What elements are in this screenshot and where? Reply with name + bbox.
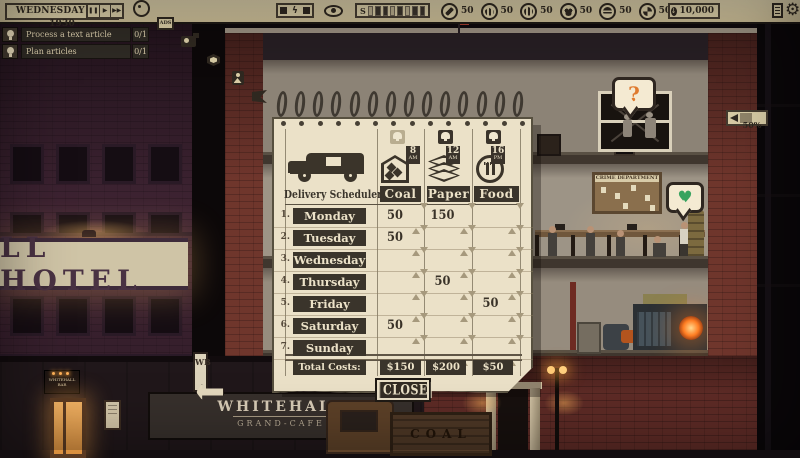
quest-label: Process a text article	[21, 27, 131, 42]
faction-value: 50	[540, 6, 553, 16]
ring-holes	[279, 121, 525, 126]
hotel-window	[56, 144, 90, 184]
coal-alarm-bell[interactable]	[390, 130, 405, 144]
question-mark-icon: ?	[628, 82, 640, 106]
row-number: 7.	[274, 342, 290, 352]
money-display: ↓ 10,000	[668, 3, 720, 19]
paper-column-header: Paper	[427, 186, 470, 202]
delivery-scheduler-dialog: Delivery Scheduler 8AM 12AM 16PM Coal Pa…	[272, 91, 533, 411]
coal-cell-sunday	[377, 338, 424, 359]
row-number: 1.	[274, 210, 290, 220]
value-stepper[interactable]	[412, 253, 422, 268]
coal-cell-tuesday: 50	[377, 228, 424, 249]
coal-icon	[381, 155, 409, 183]
control-panel	[577, 322, 601, 354]
coal-cell-thursday	[377, 272, 424, 293]
circulation-display: 50%	[726, 110, 768, 126]
food-time-badge: 16PM	[491, 146, 505, 164]
quest-label: Plan articles	[21, 44, 131, 59]
hotel-window	[10, 144, 44, 184]
paper-total: $200	[426, 360, 466, 375]
quest-progress: 0/1	[132, 44, 149, 59]
coal-column-header: Coal	[380, 186, 421, 202]
value-stepper[interactable]	[412, 209, 422, 224]
food-cell-wednesday	[472, 250, 520, 271]
staff-menu-button[interactable]	[229, 71, 246, 88]
day-label: Thursday	[293, 274, 366, 290]
value-stepper[interactable]	[460, 209, 470, 224]
sales-meter: S	[355, 3, 430, 18]
crowd-circle-icon[interactable]	[560, 3, 577, 20]
hotel-window	[148, 144, 182, 184]
heart-bubble[interactable]: ♥	[666, 182, 704, 213]
faction-stat: 50	[599, 3, 632, 20]
schedule-row: 1. Monday 50 150	[274, 206, 535, 228]
builder-worker	[645, 118, 656, 138]
value-stepper[interactable]	[412, 319, 422, 334]
paper-stack-icon	[207, 54, 220, 66]
faction-reputation-group: 50 50 50 50 50 50	[441, 2, 678, 20]
schedule-row: 2. Tuesday 50	[274, 228, 535, 250]
lamppost	[547, 362, 567, 450]
value-stepper[interactable]	[460, 297, 470, 312]
row-number: 4.	[274, 276, 290, 286]
brick-column-right	[708, 33, 757, 356]
coal-cell-wednesday	[377, 250, 424, 271]
circulation-value: 50%	[743, 120, 762, 130]
value-stepper[interactable]	[508, 231, 518, 246]
food-cell-monday	[472, 206, 520, 227]
meter-segment	[375, 6, 380, 16]
schedule-row: 6. Saturday 50	[274, 316, 535, 338]
food-cell-thursday	[472, 272, 520, 293]
top-resource-bar: WEDNESDAY JAN 1930 ❚❚ ▶ ▶▶ ADS ϟ S 50 50…	[0, 0, 800, 22]
pause-button[interactable]: ❚❚	[88, 5, 100, 17]
coal-cell-friday	[377, 294, 424, 315]
faction-stat: 50	[441, 3, 474, 20]
ads-menu-button[interactable]: ADS	[157, 17, 174, 34]
report-icon[interactable]	[772, 3, 783, 18]
cell-value: 50	[428, 274, 457, 289]
value-stepper[interactable]	[460, 253, 470, 268]
crime-department-board: CRIME DEPARTMENT	[592, 172, 662, 214]
day-label: Wednesday	[293, 252, 366, 268]
boiler-furnace	[633, 304, 707, 350]
truck-cargo: COAL	[390, 412, 492, 456]
globe-icon	[133, 0, 150, 17]
meter-segment	[412, 6, 417, 16]
leaf-circle-icon[interactable]	[441, 3, 458, 20]
value-stepper[interactable]	[508, 297, 518, 312]
value-stepper[interactable]	[508, 275, 518, 290]
power-segment	[280, 7, 287, 14]
paper-cell-tuesday	[424, 228, 472, 249]
value-stepper[interactable]	[460, 341, 470, 356]
cell-value: 50	[381, 208, 409, 223]
lightbulb-icon	[2, 44, 18, 59]
row-number: 2.	[274, 232, 290, 242]
value-stepper[interactable]	[412, 231, 422, 246]
delivery-menu-button[interactable]	[252, 90, 269, 107]
food-alarm-bell[interactable]	[486, 130, 501, 144]
schedule-row: 7. Sunday	[274, 338, 535, 360]
paper-alarm-bell[interactable]	[438, 130, 453, 144]
coin-icon: ↓	[671, 7, 677, 16]
meter-segment	[383, 6, 388, 16]
totals-row: Total Costs: $150 $200 $50	[274, 360, 535, 376]
neighbor-building	[757, 24, 800, 450]
fast-forward-button[interactable]: ▶▶	[111, 5, 122, 17]
row-number: 5.	[274, 298, 290, 308]
question-bubble[interactable]: ?	[612, 77, 656, 111]
meter-segment	[397, 6, 402, 16]
paper-cell-sunday	[424, 338, 472, 359]
scheduler-title: Delivery Scheduler	[284, 188, 376, 201]
cell-value: 150	[428, 208, 457, 223]
value-stepper[interactable]	[412, 341, 422, 356]
quest-progress: 0/1	[132, 27, 149, 42]
crime-board-title: CRIME DEPARTMENT	[595, 175, 659, 182]
day-label: Saturday	[293, 318, 366, 334]
faction-stat: 50	[560, 3, 593, 20]
lightning-icon: ϟ	[292, 6, 298, 16]
industry-circle-icon[interactable]	[481, 3, 498, 20]
day-label: Tuesday	[293, 230, 366, 246]
cell-value: 50	[476, 296, 505, 311]
faction-value: 50	[461, 6, 474, 16]
paper-cell-saturday	[424, 316, 472, 337]
bank-circle-icon[interactable]	[520, 3, 537, 20]
pennant-icon	[252, 90, 267, 103]
decrement-arrow-icon[interactable]	[516, 335, 524, 360]
paper-cell-wednesday	[424, 250, 472, 271]
quest-row[interactable]: Process a text article 0/1	[2, 27, 149, 42]
meter-segment	[368, 6, 373, 16]
power-segment	[303, 7, 310, 14]
hotel-sign: LL HOTEL	[0, 238, 188, 290]
settings-gear-icon[interactable]: ⚙	[785, 0, 800, 20]
quest-tracker: Process a text article 0/1 Plan articles…	[2, 27, 149, 61]
faction-stat: 50	[520, 3, 553, 20]
meter-segment	[390, 6, 395, 16]
day-label: Sunday	[293, 340, 366, 356]
heart-icon: ♥	[677, 188, 692, 208]
totals-label: Total Costs:	[293, 360, 366, 375]
faction-stat: 50	[639, 3, 672, 20]
food-cell-saturday	[472, 316, 520, 337]
coal-total: $150	[380, 360, 421, 375]
value-stepper[interactable]	[508, 341, 518, 356]
value-stepper[interactable]	[460, 275, 470, 290]
menu-frame	[104, 400, 121, 430]
typewriter	[555, 224, 565, 230]
hotel-window	[148, 296, 182, 336]
ads-icon: ADS	[157, 17, 174, 30]
lightbulb-icon	[2, 27, 18, 42]
eye-toggle[interactable]	[324, 5, 343, 17]
quest-row[interactable]: Plan articles 0/1	[2, 44, 149, 59]
notepad-sheet: Delivery Scheduler 8AM 12AM 16PM Coal Pa…	[272, 117, 533, 393]
hotel-window	[102, 296, 136, 336]
emblem-circle-icon[interactable]	[639, 3, 656, 20]
row-number: 3.	[274, 254, 290, 264]
meter-segment	[405, 6, 410, 16]
food-total: $50	[473, 360, 513, 375]
sales-meter-label: S	[360, 6, 366, 16]
paper-cell-thursday: 50	[424, 272, 472, 293]
portrait-circle-icon[interactable]	[599, 3, 616, 20]
day-label: Friday	[293, 296, 366, 312]
food-cell-friday: 50	[472, 294, 520, 315]
pneumatic-tube-machine	[688, 210, 704, 256]
red-pipe	[570, 282, 576, 350]
schedule-row: 3. Wednesday	[274, 250, 535, 272]
camera-icon	[181, 36, 196, 47]
paper-cell-friday	[424, 294, 472, 315]
coal-cell-monday: 50	[377, 206, 424, 227]
press-menu-button[interactable]	[181, 36, 198, 53]
builder-worker	[623, 120, 632, 137]
hotel-window	[56, 296, 90, 336]
value-stepper[interactable]	[412, 297, 422, 312]
hotel-window	[102, 144, 136, 184]
faction-value: 50	[619, 6, 632, 16]
megaphone-icon	[730, 114, 738, 122]
value-stepper[interactable]	[508, 319, 518, 334]
wall-poster: WB	[193, 352, 208, 392]
food-column-header: Food	[474, 186, 519, 202]
close-button[interactable]: CLOSE	[375, 378, 431, 402]
power-meter: ϟ	[276, 3, 314, 18]
cell-value: 50	[381, 230, 409, 245]
value-stepper[interactable]	[412, 275, 422, 290]
cell-value: 50	[381, 318, 409, 333]
game-speed-controls: ❚❚ ▶ ▶▶	[86, 3, 124, 19]
value-stepper[interactable]	[508, 253, 518, 268]
coal-cell-saturday: 50	[377, 316, 424, 337]
cafe-door	[50, 398, 86, 458]
coal-motor	[603, 324, 629, 350]
value-stepper[interactable]	[508, 209, 518, 224]
money-value: 10,000	[680, 6, 714, 16]
schedule-row: 5. Friday 50	[274, 294, 535, 316]
faction-value: 50	[501, 6, 514, 16]
play-button[interactable]: ▶	[100, 5, 112, 17]
bar-sign: WHITEHALLBAR	[44, 370, 80, 394]
employee-card-icon	[232, 71, 244, 85]
faction-stat: 50	[481, 3, 514, 20]
meter-segment	[420, 6, 425, 16]
food-cell-sunday	[472, 338, 520, 359]
furnace-fire	[679, 316, 703, 340]
faction-value: 50	[580, 6, 593, 16]
row-number: 6.	[274, 320, 290, 330]
schedule-row: 4. Thursday 50	[274, 272, 535, 294]
typewriter	[627, 224, 637, 230]
paper-time-badge: 12AM	[446, 146, 460, 164]
world-menu-button[interactable]	[133, 0, 150, 17]
delivery-truck-icon	[288, 149, 370, 185]
schedule-rows: 1. Monday 50 150 2. Tuesday	[274, 206, 535, 360]
day-label: Monday	[293, 208, 366, 224]
hotel-window	[10, 296, 44, 336]
archive-menu-button[interactable]	[205, 54, 222, 71]
value-stepper[interactable]	[460, 231, 470, 246]
food-cell-tuesday	[472, 228, 520, 249]
spiral-rings	[277, 91, 523, 121]
paper-cell-monday: 150	[424, 206, 472, 227]
value-stepper[interactable]	[460, 319, 470, 334]
coal-time-badge: 8AM	[406, 146, 420, 164]
